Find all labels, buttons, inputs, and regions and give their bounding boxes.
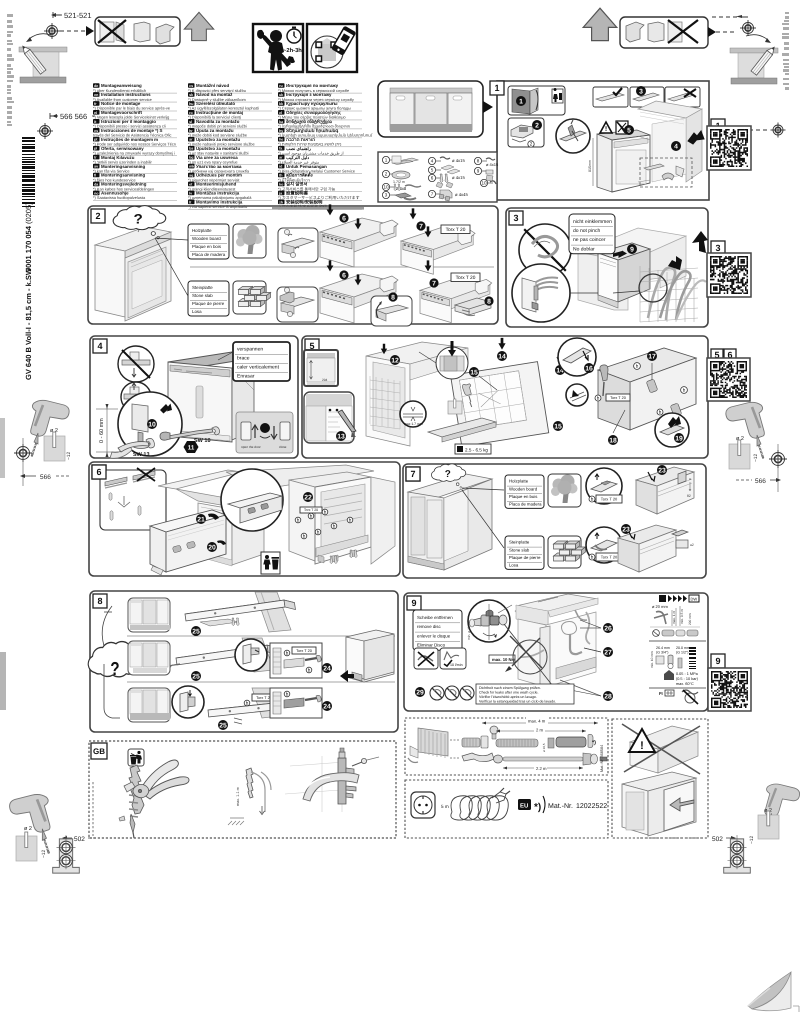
- svg-text:FI: FI: [659, 691, 663, 696]
- svg-text:28: 28: [604, 693, 612, 700]
- svg-text:Losa: Losa: [192, 309, 202, 314]
- svg-text:Dichtheit nach einem Spülgang: Dichtheit nach einem Spülgang prüfen.: [479, 686, 541, 690]
- svg-text:do not pinch: do not pinch: [573, 228, 600, 234]
- svg-text:*): *): [534, 802, 541, 813]
- svg-text:566: 566: [755, 478, 766, 485]
- svg-text:Plaque en bois: Plaque en bois: [509, 494, 537, 499]
- svg-text:b: b: [597, 396, 600, 401]
- svg-text:2.5 - 6.5 kg: 2.5 - 6.5 kg: [465, 448, 488, 453]
- svg-text:8: 8: [477, 159, 480, 164]
- svg-text:Plaque de pierre: Plaque de pierre: [192, 301, 225, 306]
- svg-text:GV 640 B Voll-I - 81,5 cm - k.: GV 640 B Voll-I - 81,5 cm - k.SW: [24, 267, 33, 380]
- svg-text:1.7/2 m: 1.7/2 m: [393, 180, 405, 184]
- svg-text:9001 170 054 (0205): 9001 170 054 (0205): [24, 202, 33, 272]
- svg-text:min. ø 18 mm: min. ø 18 mm: [467, 620, 471, 640]
- svg-text:!: !: [640, 740, 644, 752]
- svg-text:b: b: [317, 530, 320, 535]
- svg-text:Torx T 20: Torx T 20: [610, 396, 626, 400]
- svg-text:GB: GB: [93, 747, 105, 756]
- svg-text:26: 26: [604, 625, 612, 632]
- svg-text:9: 9: [477, 169, 480, 174]
- svg-text:Torx T 20: Torx T 20: [446, 227, 466, 233]
- svg-text:open the door: open the door: [241, 445, 262, 449]
- svg-text:2: 2: [530, 142, 533, 147]
- svg-text:b: b: [591, 497, 594, 502]
- svg-text:0 - 60 mm: 0 - 60 mm: [99, 418, 105, 443]
- svg-text:nicht einklemmen: nicht einklemmen: [573, 219, 612, 225]
- svg-text:7: 7: [419, 223, 423, 230]
- svg-text:Stone slab: Stone slab: [192, 293, 213, 298]
- svg-text:b: b: [246, 701, 249, 706]
- svg-text:ø 10,5: ø 10,5: [542, 743, 546, 752]
- svg-text:Placa de madera: Placa de madera: [509, 501, 542, 506]
- svg-text:8: 8: [391, 294, 395, 301]
- svg-text:24: 24: [323, 703, 331, 710]
- svg-text:b: b: [286, 651, 289, 656]
- svg-text:2 m: 2 m: [536, 728, 543, 733]
- svg-text:~12: ~12: [753, 454, 759, 462]
- svg-text:max. 60°C: max. 60°C: [676, 682, 694, 686]
- svg-text:close: close: [279, 445, 287, 449]
- svg-text:Torx T 20: Torx T 20: [456, 275, 476, 281]
- svg-text:3: 3: [513, 213, 518, 223]
- svg-text:?: ?: [110, 659, 119, 680]
- svg-text:9: 9: [411, 598, 416, 608]
- svg-text:5: 5: [627, 127, 631, 134]
- svg-text:b: b: [303, 534, 306, 539]
- svg-text:!: !: [605, 126, 607, 133]
- svg-text:521-521: 521-521: [64, 11, 92, 20]
- svg-text:No doblar: No doblar: [573, 246, 595, 252]
- svg-text:Holzplatte: Holzplatte: [509, 479, 529, 484]
- svg-text:2: 2: [385, 172, 388, 177]
- svg-text:5 m: 5 m: [441, 804, 449, 809]
- svg-text:max. 1 m: max. 1 m: [672, 611, 676, 624]
- svg-text:290 mm: 290 mm: [688, 613, 692, 625]
- svg-text:7: 7: [432, 280, 436, 287]
- svg-text:27: 27: [604, 649, 612, 656]
- svg-text:Stone slab: Stone slab: [509, 547, 530, 552]
- svg-text:b: b: [324, 510, 327, 515]
- svg-text:~12: ~12: [41, 850, 47, 858]
- svg-text:min. 0.5 m: min. 0.5 m: [680, 609, 684, 624]
- svg-text:ø 4x15: ø 4x15: [486, 162, 499, 167]
- svg-text:9: 9: [630, 246, 634, 253]
- svg-text:294: 294: [322, 378, 328, 382]
- svg-text:b: b: [310, 514, 313, 519]
- svg-text:b: b: [636, 364, 639, 369]
- svg-text:Steinplatte: Steinplatte: [192, 285, 213, 290]
- svg-text:max. 4 m: max. 4 m: [528, 719, 546, 724]
- svg-text:13: 13: [337, 433, 345, 440]
- svg-text:?: ?: [133, 212, 142, 226]
- svg-text:2.2 m: 2.2 m: [536, 766, 547, 771]
- svg-text:a: a: [689, 477, 691, 481]
- svg-text:*): *): [592, 740, 596, 746]
- svg-text:ø 4x15: ø 4x15: [452, 175, 465, 180]
- svg-text:10: 10: [481, 181, 487, 186]
- svg-text:Plaque en bois: Plaque en bois: [192, 244, 222, 249]
- svg-text:9: 9: [715, 656, 720, 666]
- svg-text:2: 2: [535, 122, 539, 129]
- svg-text:12: 12: [391, 357, 399, 364]
- svg-text:SW 10: SW 10: [194, 438, 211, 444]
- svg-text:6: 6: [431, 176, 434, 181]
- svg-text:b: b: [349, 518, 352, 523]
- svg-text:21: 21: [197, 516, 205, 523]
- svg-text:ø 20 mm: ø 20 mm: [652, 604, 668, 609]
- svg-text:~2h-3h: ~2h-3h: [283, 47, 302, 54]
- svg-text:4: 4: [97, 341, 102, 351]
- svg-text:?: ?: [445, 469, 451, 480]
- svg-text:26.4 mm: 26.4 mm: [656, 646, 670, 650]
- svg-text:(0.5 - 10 bar): (0.5 - 10 bar): [676, 677, 699, 681]
- svg-text:6: 6: [342, 272, 346, 279]
- svg-text:1: 1: [494, 83, 499, 93]
- svg-text:max. 1.1 m: max. 1.1 m: [236, 787, 240, 806]
- svg-text:24: 24: [323, 665, 331, 672]
- svg-text:Wooden board: Wooden board: [192, 236, 221, 241]
- svg-text:10: 10: [383, 185, 389, 190]
- svg-text:caler verticalement: caler verticalement: [237, 365, 280, 371]
- svg-text:b: b: [683, 388, 686, 393]
- svg-text:Mat.-Nr.: Mat.-Nr.: [548, 803, 573, 810]
- svg-text:3: 3: [385, 193, 388, 198]
- svg-text:19: 19: [675, 435, 683, 442]
- svg-text:ø 2: ø 2: [24, 826, 32, 832]
- svg-text:verspannen: verspannen: [237, 347, 263, 353]
- svg-text:502: 502: [74, 836, 85, 843]
- svg-text:remove disc: remove disc: [417, 624, 441, 629]
- svg-text:7: 7: [431, 192, 434, 197]
- svg-text:Steinplatte: Steinplatte: [509, 540, 530, 545]
- svg-text:566: 566: [40, 474, 51, 481]
- svg-text:25: 25: [219, 722, 227, 729]
- svg-text:25: 25: [192, 673, 200, 680]
- svg-text:Plaque de pierre: Plaque de pierre: [509, 555, 541, 560]
- svg-text:DW: DW: [691, 597, 698, 602]
- svg-text:4: 4: [674, 143, 678, 150]
- svg-text:22: 22: [304, 494, 312, 501]
- svg-text:a2: a2: [690, 543, 694, 547]
- svg-text:5: 5: [431, 168, 434, 173]
- svg-text:2: 2: [95, 211, 100, 221]
- svg-text:Enrasar: Enrasar: [237, 374, 255, 380]
- svg-text:815mm: 815mm: [588, 160, 592, 172]
- svg-text:8: 8: [97, 596, 102, 606]
- svg-text:Verificar la estanqueidad tras: Verificar la estanqueidad tras un ciclo …: [479, 700, 556, 704]
- svg-text:12022522: 12022522: [576, 803, 607, 810]
- svg-text:enlever le disque: enlever le disque: [417, 633, 451, 638]
- svg-text:SW 13: SW 13: [133, 452, 150, 458]
- svg-text:Torx T 20: Torx T 20: [256, 696, 272, 700]
- svg-text:ne pas coincer: ne pas coincer: [573, 237, 606, 243]
- svg-text:502: 502: [712, 836, 723, 843]
- svg-text:10 l/min: 10 l/min: [450, 663, 463, 667]
- svg-text:Check for leaks after one wash: Check for leaks after one wash cycle.: [479, 691, 539, 695]
- svg-text:7: 7: [410, 469, 415, 479]
- svg-text:23: 23: [658, 467, 666, 474]
- svg-text:b: b: [333, 524, 336, 529]
- svg-text:b: b: [297, 518, 300, 523]
- svg-text:0.05 - 1 MPa: 0.05 - 1 MPa: [676, 672, 699, 676]
- svg-text:min. 10 mm: min. 10 mm: [650, 651, 654, 668]
- svg-text:Scheibe entfernen: Scheibe entfernen: [417, 615, 453, 620]
- svg-text:6: 6: [96, 467, 101, 477]
- svg-text:(G 3/4"): (G 3/4"): [656, 651, 668, 655]
- svg-text:max. 10 Nm: max. 10 Nm: [492, 657, 516, 662]
- svg-text:max 1.7 mm: max 1.7 mm: [404, 422, 423, 426]
- svg-text:ø 4x15: ø 4x15: [452, 158, 465, 163]
- svg-text:EU: EU: [520, 803, 528, 810]
- svg-text:20: 20: [208, 544, 216, 551]
- svg-text:4: 4: [431, 159, 434, 164]
- svg-text:1: 1: [519, 98, 523, 105]
- svg-text:b: b: [286, 692, 289, 697]
- svg-text:Torx T 20: Torx T 20: [304, 508, 318, 512]
- svg-text:15: 15: [470, 369, 478, 376]
- svg-text:Placa de madera: Placa de madera: [192, 252, 226, 257]
- svg-text:b: b: [308, 668, 311, 673]
- svg-text:6: 6: [342, 215, 346, 222]
- svg-text:17: 17: [648, 353, 656, 360]
- svg-text:~12: ~12: [66, 452, 72, 460]
- svg-text:18: 18: [609, 437, 617, 444]
- svg-text:1: 1: [385, 158, 388, 163]
- svg-text:ø 4x45: ø 4x45: [455, 192, 468, 197]
- svg-text:82: 82: [687, 494, 691, 498]
- svg-text:b: b: [659, 410, 662, 415]
- svg-text:Eliminar Disco: Eliminar Disco: [417, 643, 446, 648]
- svg-text:8: 8: [487, 298, 491, 305]
- svg-text:3: 3: [639, 88, 643, 95]
- svg-text:566 566: 566 566: [60, 112, 87, 121]
- svg-text:3: 3: [715, 243, 720, 253]
- svg-text:Torx T 20: Torx T 20: [296, 649, 312, 653]
- svg-text:Losa: Losa: [509, 562, 519, 567]
- svg-text:25: 25: [192, 628, 200, 635]
- svg-text:*) Saatavissa huoltopalvelusta: *) Saatavissa huoltopalvelusta: [93, 195, 146, 200]
- svg-text:Torx T 20: Torx T 20: [601, 496, 618, 501]
- svg-text:Wooden board: Wooden board: [509, 486, 538, 491]
- svg-text:Vérifier l'étanchéité après un: Vérifier l'étanchéité après un lavage.: [479, 695, 537, 699]
- svg-text:15: 15: [554, 423, 562, 430]
- svg-text:Mat.-Nr. 368584: Mat.-Nr. 368584: [600, 745, 604, 772]
- svg-text:b: b: [591, 555, 594, 560]
- svg-text:(G 1/2"): (G 1/2"): [676, 651, 688, 655]
- svg-text:16: 16: [585, 365, 593, 372]
- svg-text:11: 11: [188, 445, 195, 452]
- svg-text:10: 10: [148, 421, 156, 428]
- svg-text:brace: brace: [237, 356, 250, 362]
- svg-text:Torx T 20: Torx T 20: [601, 554, 618, 559]
- svg-text:Holzplatte: Holzplatte: [192, 228, 212, 233]
- svg-text:~12: ~12: [749, 836, 755, 844]
- svg-text:2.4x8: 2.4x8: [396, 186, 407, 191]
- svg-text:14: 14: [498, 353, 506, 360]
- svg-text:23: 23: [622, 526, 630, 533]
- svg-text:20.0 mm: 20.0 mm: [676, 646, 690, 650]
- svg-text:29: 29: [416, 689, 424, 696]
